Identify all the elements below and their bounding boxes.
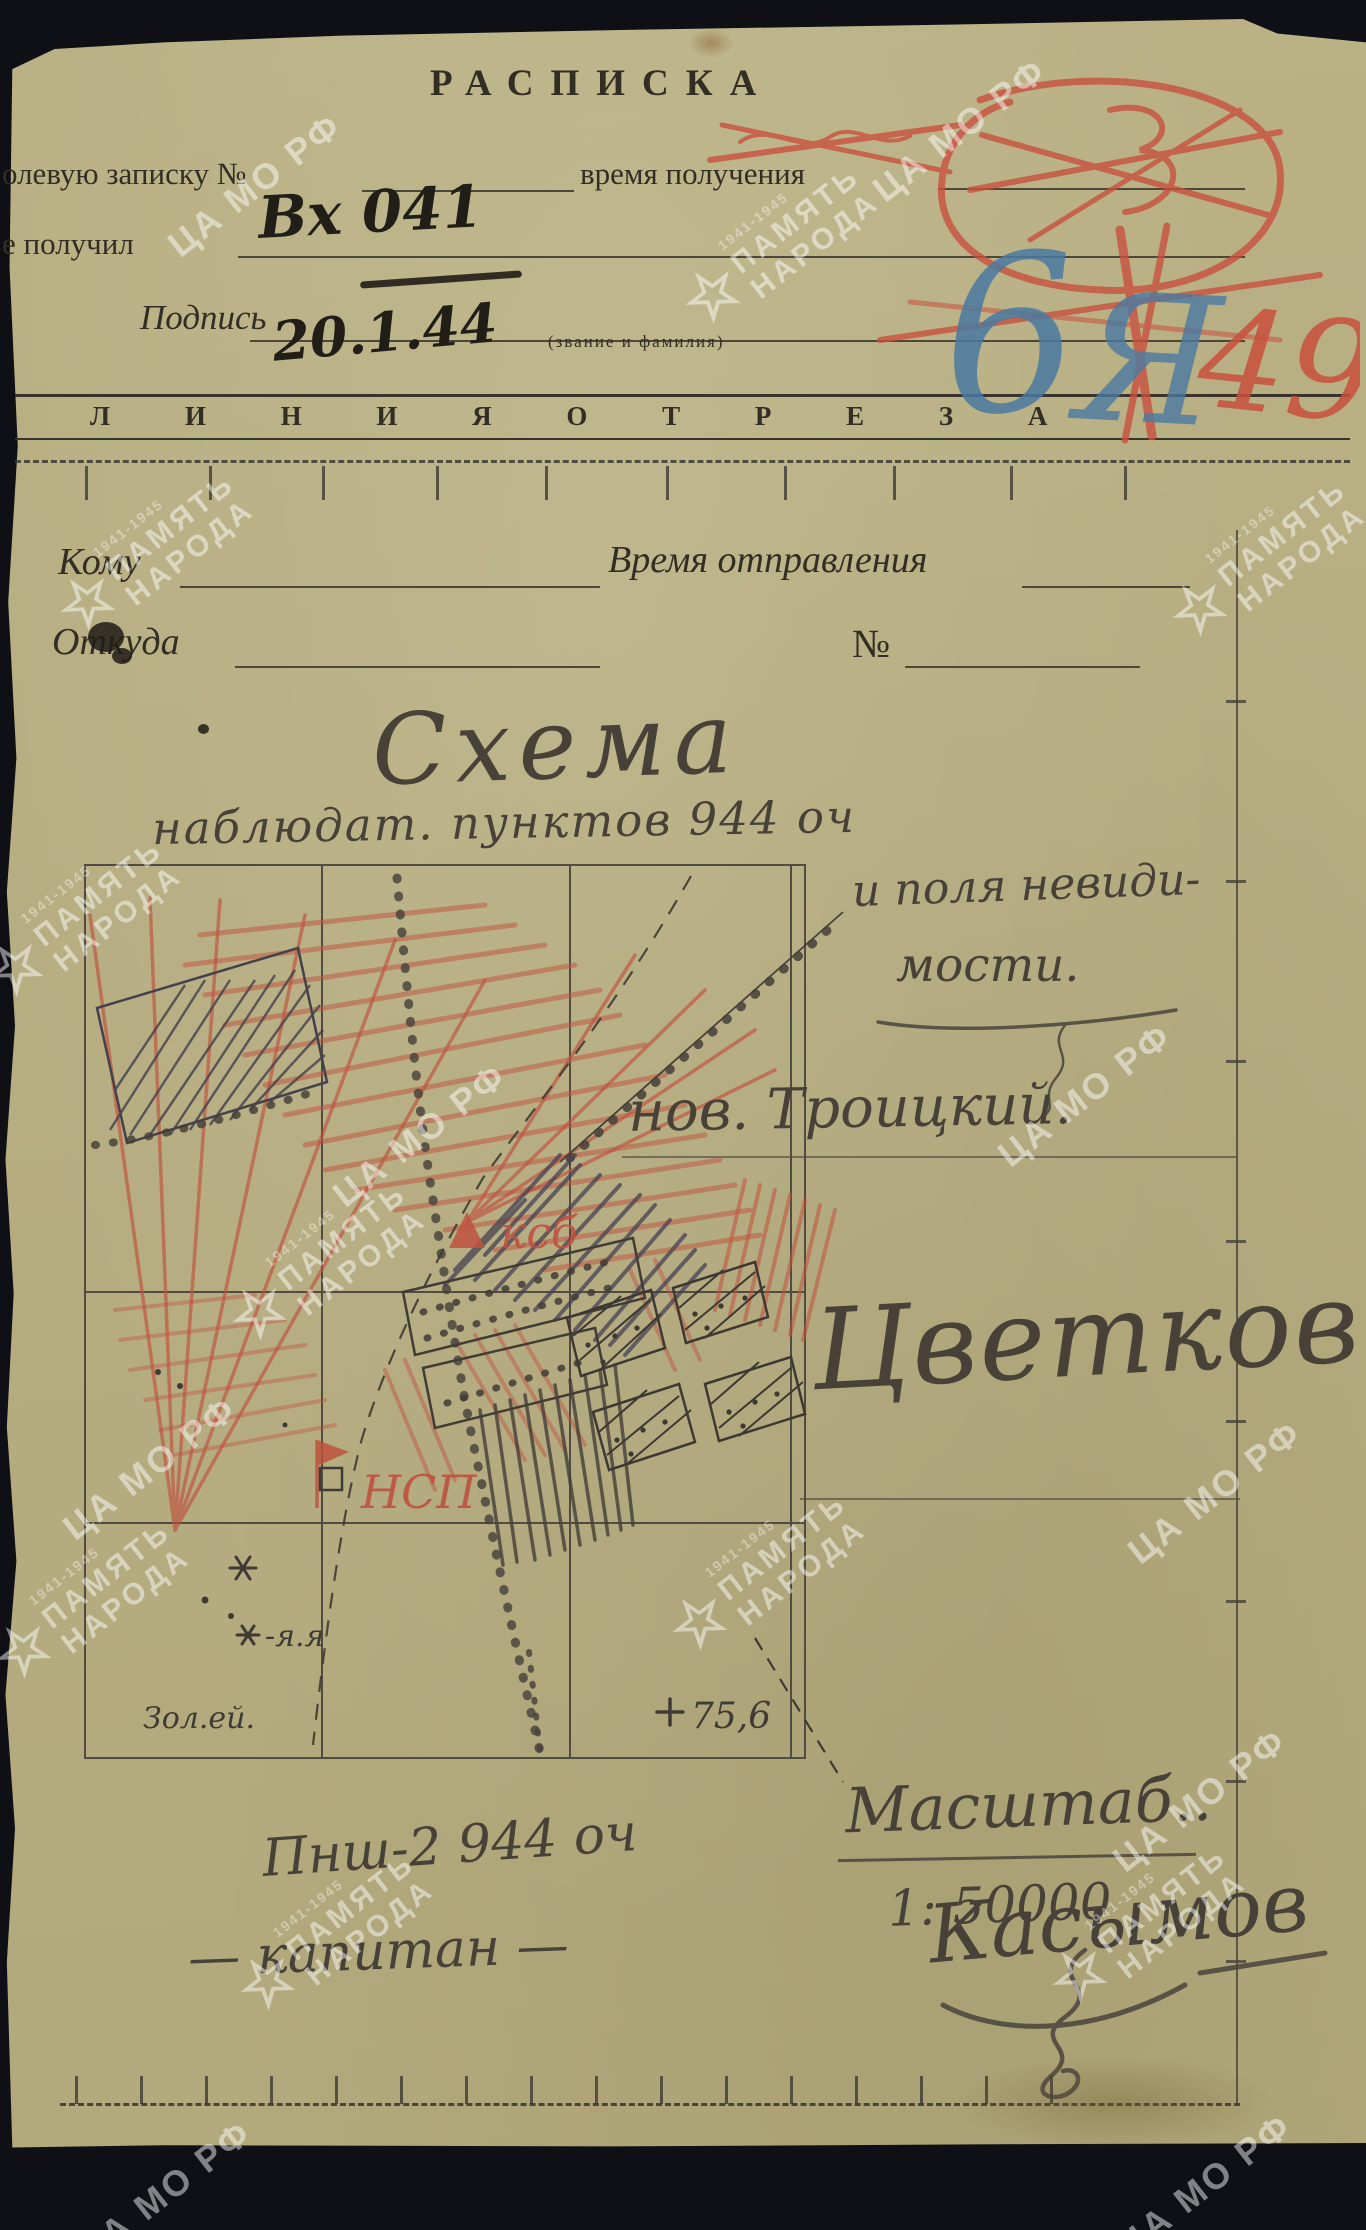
signature-label: Подпись [140, 298, 266, 338]
field-received-label: е получил [2, 226, 134, 262]
height-mark-value: 75,6 [691, 1696, 771, 1737]
margin-tick [1226, 1780, 1246, 1783]
schema-note-line2: мости. [896, 938, 1079, 993]
hatch-bundle [480, 1365, 633, 1565]
field-to-line [180, 552, 600, 588]
field-to-label: Кому [58, 540, 140, 584]
field-number-label: № [852, 620, 890, 667]
margin-tick [1226, 1240, 1246, 1243]
ink-blot [112, 648, 132, 664]
margin-tick [1226, 1060, 1246, 1063]
observation-map: ксб НСП -я.я Зол.ей. 75,6 [55, 840, 845, 1790]
ruler-tick [436, 466, 439, 500]
received-entry-handwritten: Вх 041 [256, 172, 484, 252]
landmark-text-2: Зол.ей. [143, 1701, 255, 1736]
red-mark-49: 49 [1190, 277, 1360, 456]
blue-mark-6: 6 [933, 205, 1087, 460]
red-hatch-left [115, 1295, 335, 1455]
paper-stain [950, 2055, 1280, 2150]
bottom-tick [140, 2076, 143, 2104]
red-observation-rays [90, 898, 775, 1530]
bottom-tick [530, 2076, 533, 2104]
bottom-tick [335, 2076, 338, 2104]
landmark-text-1: -я.я [265, 1619, 324, 1654]
ruler-tick [784, 466, 787, 500]
ruler-tick [545, 466, 548, 500]
ruler-tick [893, 466, 896, 500]
bottom-tick [400, 2076, 403, 2104]
bottom-tick [465, 2076, 468, 2104]
ruler-tick [209, 466, 212, 500]
margin-tick [1226, 1600, 1246, 1603]
field-send-time-line [1022, 552, 1190, 588]
ruler-tick [322, 466, 325, 500]
bottom-tick [725, 2076, 728, 2104]
bottom-tick [790, 2076, 793, 2104]
field-send-time-label: Время отправления [608, 538, 927, 582]
scale-label: Масштаб.. [844, 1762, 1213, 1848]
bottom-tick [75, 2076, 78, 2104]
small-square-symbol [320, 1468, 342, 1490]
scanned-document-page: РАСПИСКА олевую записку № время получени… [0, 0, 1366, 2230]
margin-tick [1226, 1420, 1246, 1423]
asterisk-symbol [230, 1557, 259, 1644]
signature-underline [800, 1498, 1240, 1500]
ruler-tick [1124, 466, 1127, 500]
field-number-line [905, 632, 1140, 668]
village-name: нов. Троицкий. [627, 1072, 1072, 1145]
field-from-line [235, 632, 600, 668]
map-label-nsp: НСП [360, 1465, 477, 1519]
bottom-tick [660, 2076, 663, 2104]
margin-tick [1226, 880, 1246, 883]
height-point-cross [657, 1699, 683, 1725]
margin-tick [1226, 700, 1246, 703]
bottom-tick [270, 2076, 273, 2104]
map-label-ksb: ксб [500, 1208, 578, 1259]
bottom-tick [920, 2076, 923, 2104]
red-blue-scribble-marks: 6 Я 49 [680, 40, 1360, 460]
cut-dashed-line [15, 460, 1350, 463]
ruler-tick [85, 466, 88, 500]
schema-title: Схема [370, 682, 742, 809]
bottom-tick [595, 2076, 598, 2104]
ruler-tick [666, 466, 669, 500]
field-note-number-label: олевую записку № [2, 156, 246, 192]
bottom-tick [205, 2076, 208, 2104]
bottom-tick [855, 2076, 858, 2104]
ruler-tick [1010, 466, 1013, 500]
ink-dot [198, 724, 209, 734]
